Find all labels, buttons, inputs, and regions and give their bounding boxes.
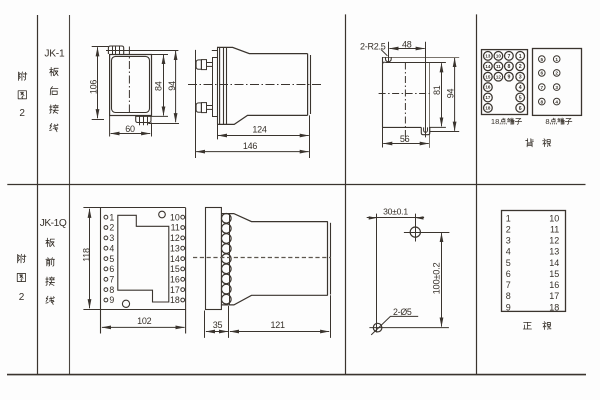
svg-text:8: 8 — [506, 291, 511, 301]
svg-text:118: 118 — [81, 248, 91, 262]
svg-text:3: 3 — [109, 233, 114, 243]
svg-text:17: 17 — [549, 291, 559, 301]
svg-text:56: 56 — [400, 134, 410, 144]
svg-text:3: 3 — [519, 75, 522, 81]
svg-text:5: 5 — [506, 258, 511, 268]
svg-text:11: 11 — [171, 223, 180, 233]
svg-text:10: 10 — [170, 212, 180, 222]
svg-text:13: 13 — [549, 247, 559, 257]
svg-text:5: 5 — [540, 57, 543, 62]
svg-text:JK-1Q: JK-1Q — [40, 218, 67, 229]
svg-text:8: 8 — [540, 99, 543, 104]
svg-text:15: 15 — [485, 74, 491, 79]
svg-text:100±0.2: 100±0.2 — [432, 263, 442, 295]
svg-text:16: 16 — [170, 275, 180, 285]
svg-text:18: 18 — [549, 302, 559, 312]
svg-text:18: 18 — [491, 117, 499, 126]
svg-text:JK-1: JK-1 — [44, 48, 65, 59]
svg-text:4: 4 — [555, 99, 558, 104]
svg-text:17: 17 — [170, 285, 180, 295]
svg-text:1: 1 — [555, 57, 558, 62]
svg-text:30±0.1: 30±0.1 — [383, 206, 408, 216]
svg-text:48: 48 — [402, 40, 412, 50]
svg-text:7: 7 — [507, 54, 510, 60]
svg-text:14: 14 — [170, 254, 180, 264]
svg-text:9: 9 — [507, 75, 510, 81]
svg-text:94: 94 — [167, 81, 177, 91]
svg-text:10: 10 — [549, 213, 559, 223]
svg-text:12: 12 — [549, 236, 559, 246]
svg-text:9: 9 — [109, 295, 114, 305]
svg-text:102: 102 — [137, 316, 152, 326]
svg-text:6: 6 — [519, 106, 522, 112]
svg-text:11: 11 — [550, 224, 559, 234]
svg-text:8: 8 — [109, 285, 114, 295]
svg-text:2: 2 — [555, 71, 558, 76]
svg-text:13: 13 — [485, 54, 491, 59]
svg-text:124: 124 — [252, 125, 267, 135]
svg-text:18: 18 — [485, 106, 491, 111]
svg-text:12: 12 — [496, 74, 502, 79]
svg-text:3: 3 — [555, 85, 558, 90]
svg-text:6: 6 — [540, 71, 543, 76]
svg-text:5: 5 — [109, 254, 114, 264]
svg-text:1: 1 — [519, 54, 522, 60]
svg-text:4: 4 — [519, 85, 522, 91]
svg-text:15: 15 — [170, 264, 180, 274]
svg-text:84: 84 — [154, 81, 164, 91]
svg-text:2-Ø5: 2-Ø5 — [393, 307, 412, 317]
svg-text:5: 5 — [519, 95, 522, 101]
svg-text:10: 10 — [496, 54, 502, 59]
svg-text:2: 2 — [109, 223, 114, 233]
svg-text:1: 1 — [109, 212, 114, 222]
svg-text:1: 1 — [506, 213, 511, 223]
svg-text:16: 16 — [549, 280, 559, 290]
svg-text:2: 2 — [506, 224, 511, 234]
svg-text:60: 60 — [125, 124, 135, 134]
svg-text:12: 12 — [170, 233, 180, 243]
svg-text:8: 8 — [545, 117, 549, 126]
svg-text:35: 35 — [213, 320, 223, 330]
svg-text:15: 15 — [549, 269, 559, 279]
svg-text:14: 14 — [549, 258, 559, 268]
svg-text:14: 14 — [485, 64, 491, 69]
svg-text:3: 3 — [506, 236, 511, 246]
svg-text:7: 7 — [109, 275, 114, 285]
svg-text:4: 4 — [506, 247, 511, 257]
svg-text:7: 7 — [540, 85, 543, 90]
svg-text:106: 106 — [88, 80, 98, 95]
svg-text:2: 2 — [519, 64, 522, 70]
svg-text:2: 2 — [19, 292, 25, 303]
svg-text:6: 6 — [506, 269, 511, 279]
svg-text:8: 8 — [507, 64, 510, 70]
svg-text:9: 9 — [506, 302, 511, 312]
svg-text:7: 7 — [506, 280, 511, 290]
svg-text:13: 13 — [170, 243, 180, 253]
svg-text:81: 81 — [432, 85, 442, 95]
svg-text:17: 17 — [485, 95, 491, 100]
svg-text:4: 4 — [109, 243, 114, 253]
svg-text:2-R2.5: 2-R2.5 — [360, 42, 386, 52]
svg-text:121: 121 — [271, 320, 286, 330]
svg-text:6: 6 — [109, 264, 114, 274]
svg-text:11: 11 — [496, 64, 501, 69]
svg-text:16: 16 — [485, 85, 491, 90]
svg-text:18: 18 — [170, 295, 180, 305]
svg-text:146: 146 — [243, 141, 258, 151]
svg-text:94: 94 — [445, 89, 455, 99]
svg-text:2: 2 — [19, 108, 25, 119]
